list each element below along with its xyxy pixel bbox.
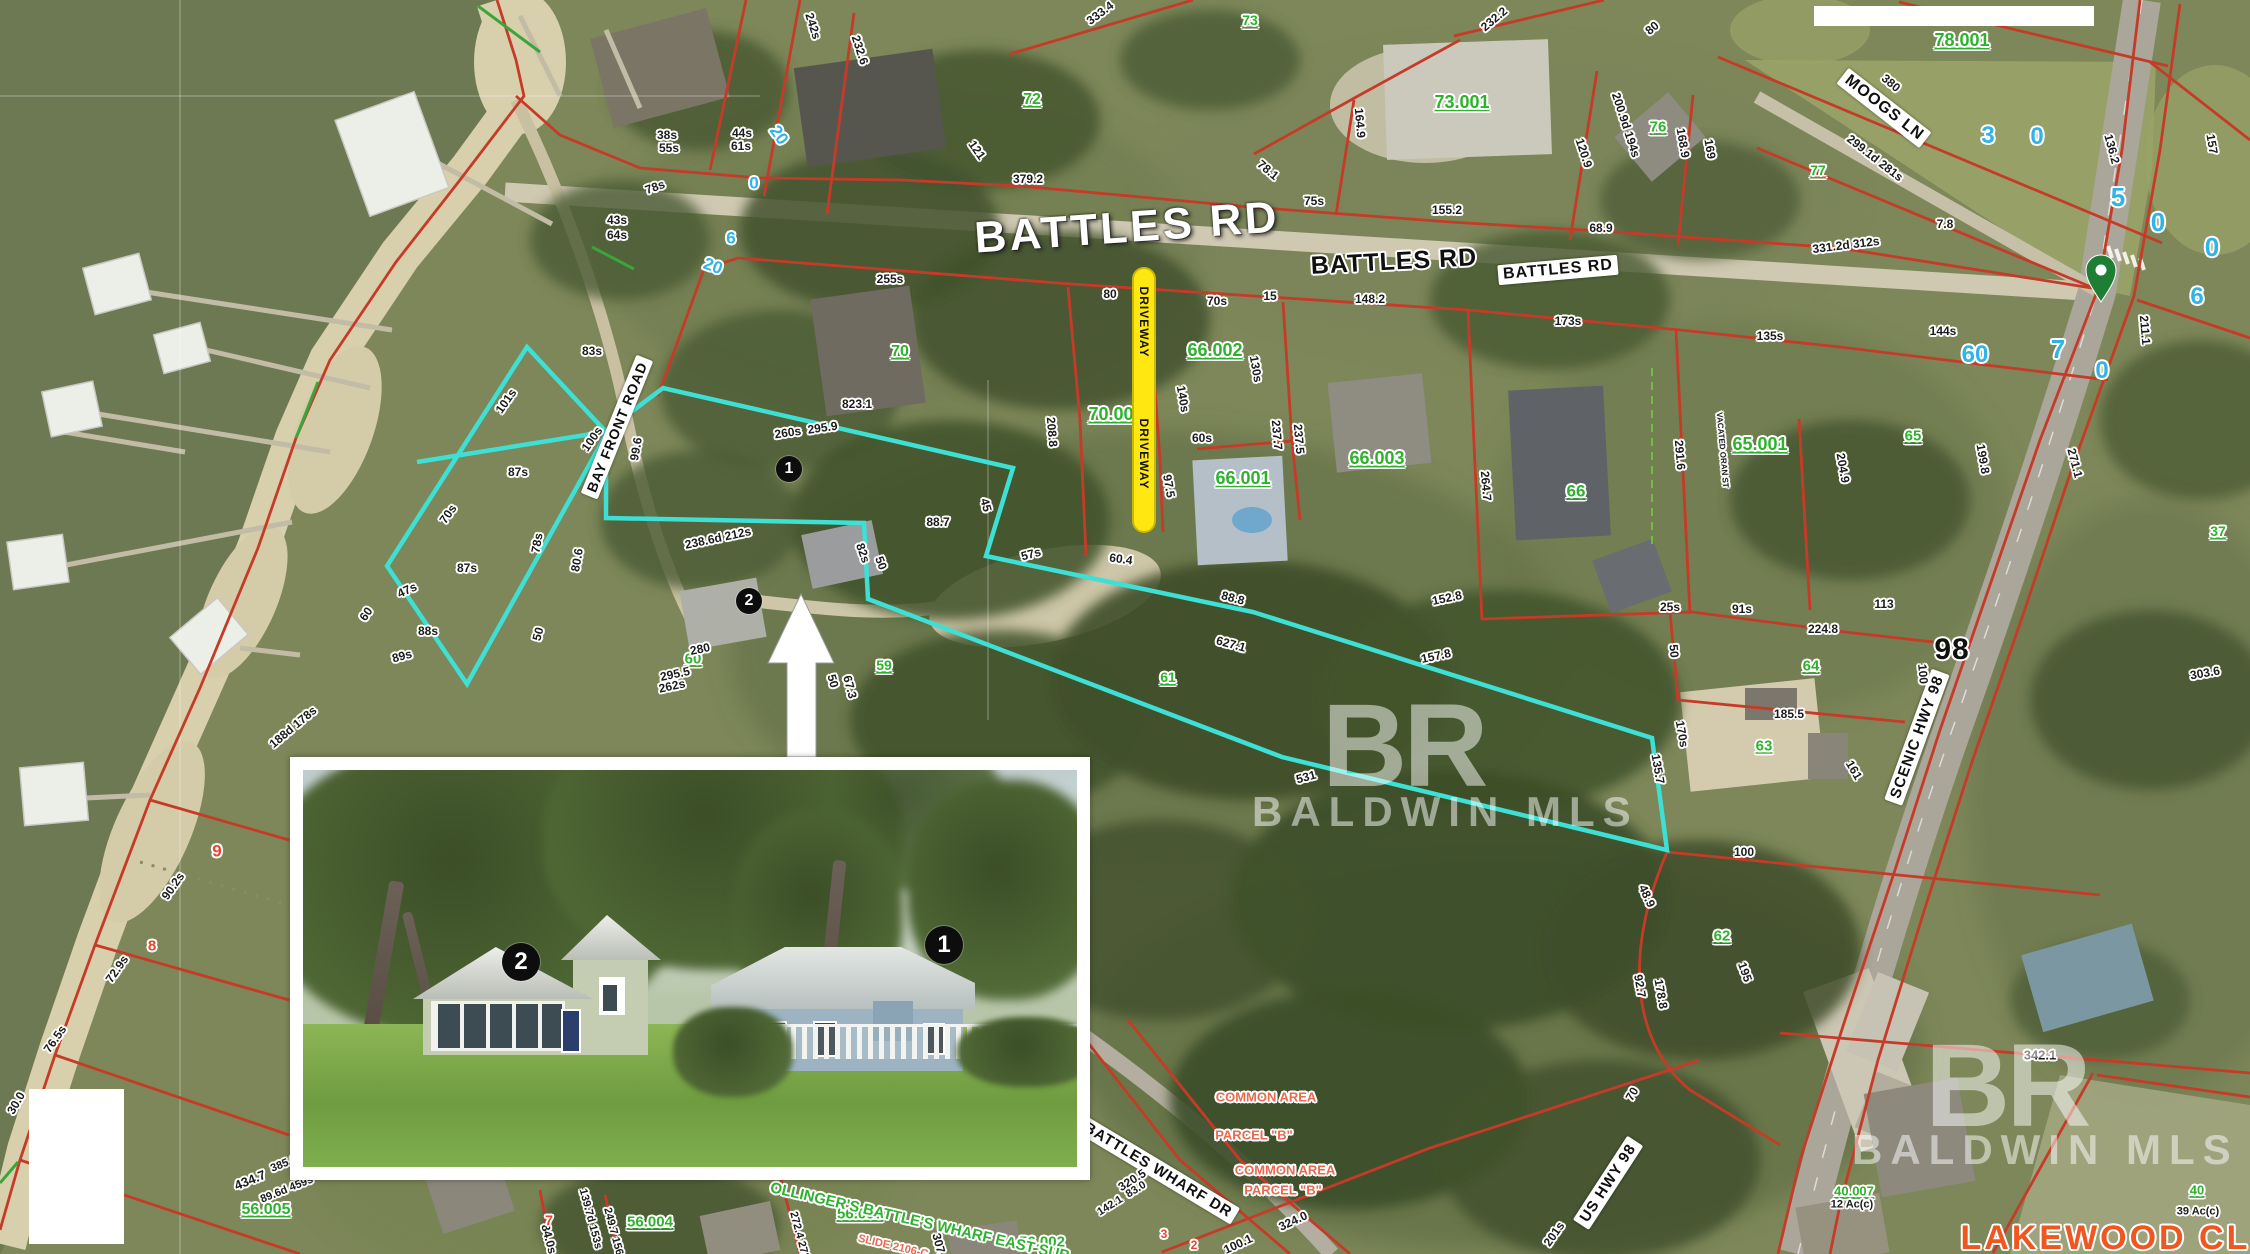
callout-markers-layer: 1221 (0, 0, 2250, 1254)
photo-marker-2: 2 (502, 943, 540, 981)
parcel-map-screenshot: BATTLES RDBATTLES RDBATTLES RDMOOGS LNBA… (0, 0, 2250, 1254)
map-marker-1: 1 (776, 456, 802, 482)
photo-marker-1: 1 (925, 926, 963, 964)
white-redaction-box (1814, 6, 2094, 26)
white-redaction-box (29, 1089, 124, 1244)
map-marker-2: 2 (736, 588, 762, 614)
